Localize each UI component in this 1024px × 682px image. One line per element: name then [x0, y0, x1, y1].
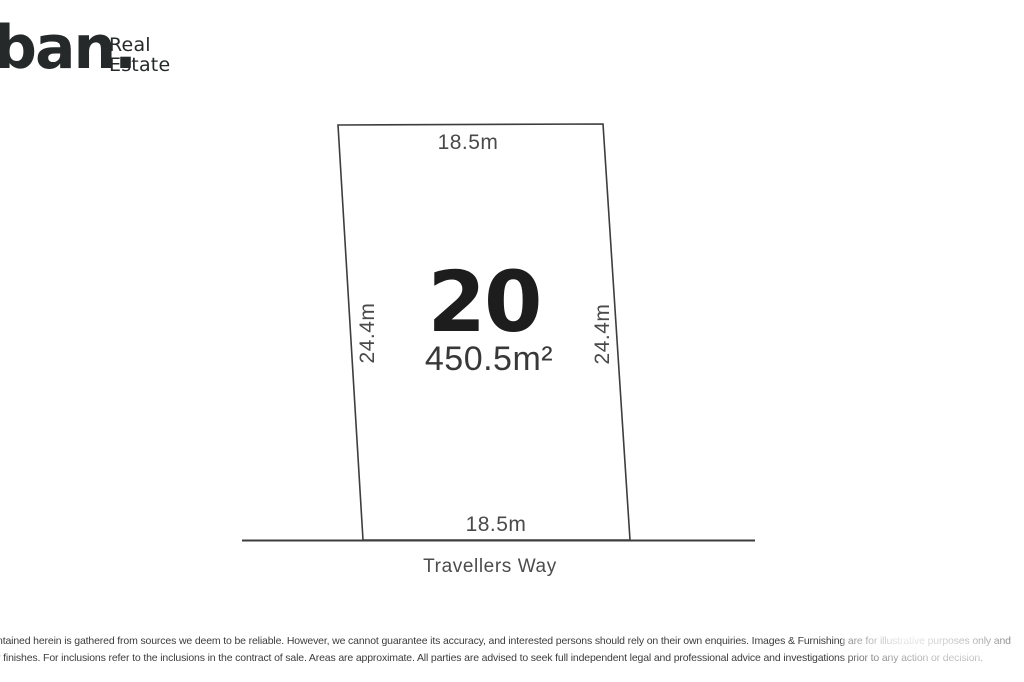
dimension-left: 24.4m — [356, 297, 380, 369]
lot-plan-page: ban. Real Estate 18.5m 18.5m 24.4m 24.4m… — [0, 0, 1024, 682]
lot-number: 20 — [384, 260, 584, 344]
disclaimer-line2: r finishes. For inclusions refer to the … — [0, 650, 1024, 667]
dimension-bottom: 18.5m — [436, 513, 556, 537]
disclaimer-text: ntained herein is gathered from sources … — [0, 633, 1024, 667]
lot-area: 450.5m² — [389, 341, 589, 377]
dimension-right: 24.4m — [591, 298, 615, 370]
street-name: Travellers Way — [390, 556, 590, 578]
dimension-top: 18.5m — [408, 131, 528, 155]
disclaimer-line1: ntained herein is gathered from sources … — [0, 633, 1024, 650]
